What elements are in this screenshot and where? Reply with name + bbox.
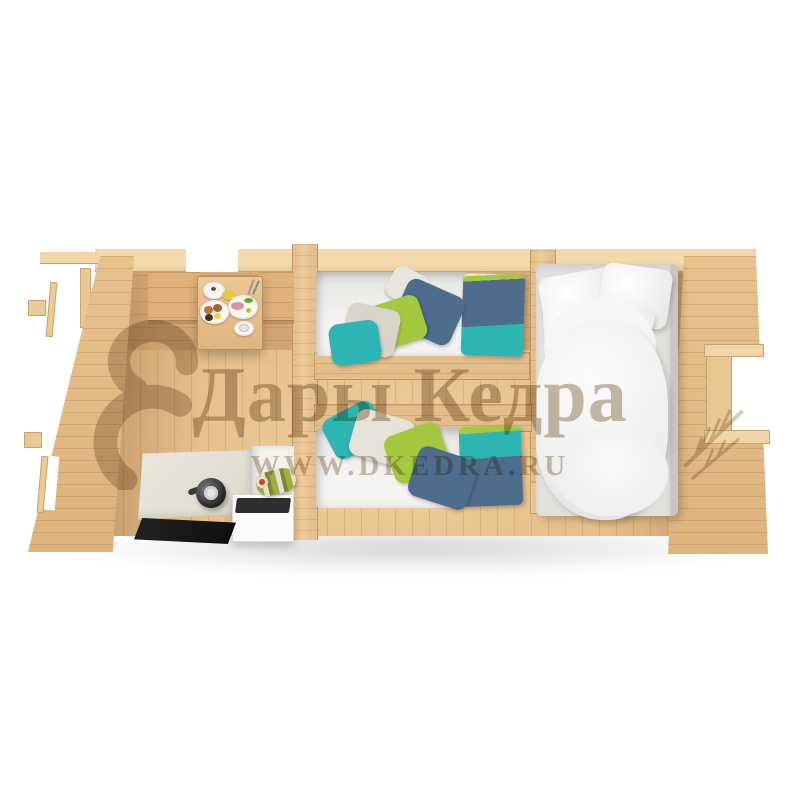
coffee (211, 287, 216, 291)
render-stage: Дары Кедра WWW.DKEDRA.RU (0, 0, 800, 800)
kettle-lid (204, 486, 218, 500)
back-door-opening (186, 246, 238, 272)
dining-bench-left (148, 272, 200, 324)
garnish (244, 298, 253, 303)
double-bed-duvet-foot (556, 428, 668, 516)
right-window-post (706, 352, 732, 436)
butter (214, 313, 221, 319)
right-window-sill (704, 430, 770, 444)
bun (204, 306, 213, 314)
log-end-left-lower (24, 432, 42, 448)
small-bowl (239, 324, 249, 332)
egg-yolk (246, 308, 251, 313)
cooktop (235, 498, 291, 513)
bed1-pillow (461, 273, 526, 357)
log-end-left-upper (28, 300, 46, 316)
roof-ledge-left (40, 252, 98, 264)
right-window-opening (728, 354, 766, 432)
bun (213, 304, 222, 312)
dining-bench-right (258, 272, 294, 324)
right-window-lintel (704, 344, 764, 357)
bed1-blanket-teal (327, 319, 382, 368)
breakfast-table (197, 276, 263, 350)
ham-slices (231, 302, 244, 310)
chocolate-bun (205, 314, 213, 321)
partition-wall-1 (292, 244, 318, 540)
